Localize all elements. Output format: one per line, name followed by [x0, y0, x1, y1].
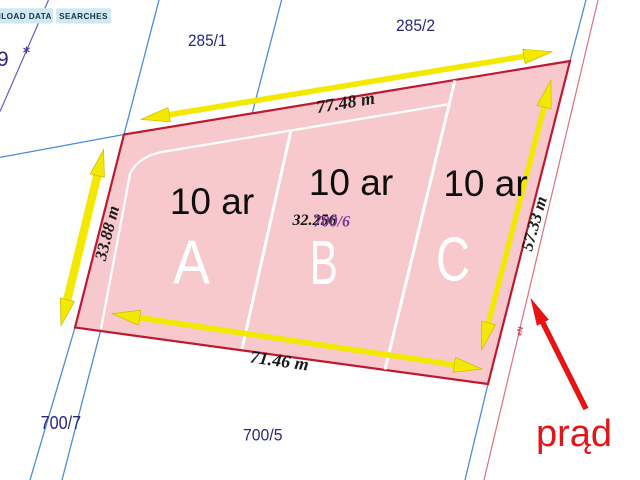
svg-text:C: C	[436, 226, 470, 295]
svg-text:10 ar: 10 ar	[170, 181, 254, 222]
svg-text:285/1: 285/1	[188, 31, 227, 50]
svg-text:10 ar: 10 ar	[443, 163, 527, 204]
svg-text:prąd: prąd	[536, 413, 612, 455]
svg-text:B: B	[310, 229, 338, 298]
svg-text:A: A	[173, 228, 211, 297]
svg-text:700/7: 700/7	[41, 413, 82, 433]
svg-text:SEARCHES: SEARCHES	[59, 12, 108, 21]
svg-text:DOWNLOAD DATA: DOWNLOAD DATA	[0, 12, 52, 21]
svg-text:9: 9	[0, 48, 9, 71]
svg-text:10 ar: 10 ar	[309, 162, 393, 203]
svg-text:700/5: 700/5	[243, 426, 283, 445]
svg-text:285/2: 285/2	[396, 16, 435, 35]
svg-text:700/6: 700/6	[314, 214, 350, 231]
